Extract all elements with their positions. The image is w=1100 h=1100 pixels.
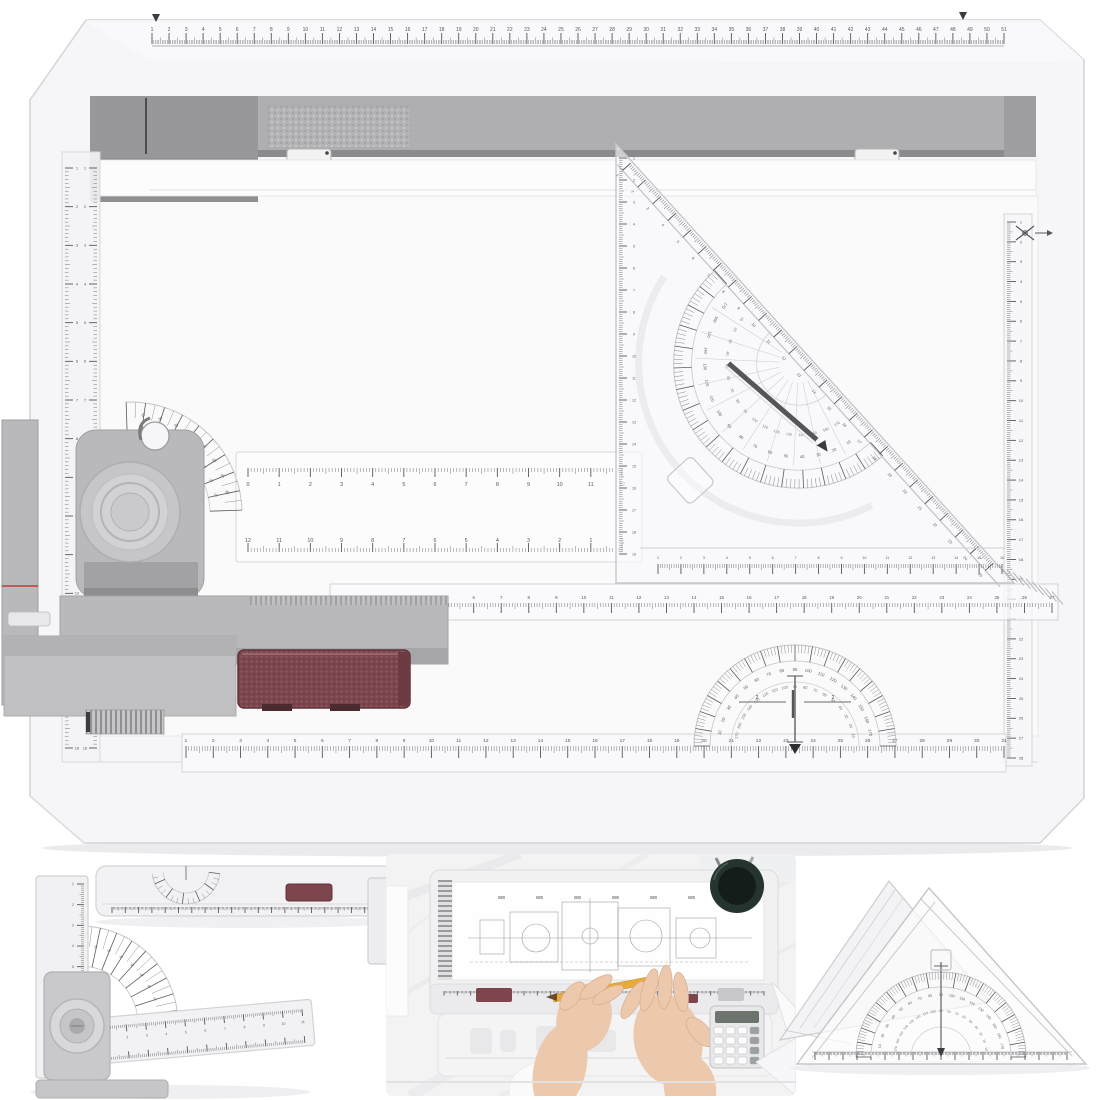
svg-text:19: 19	[829, 595, 834, 600]
svg-text:10: 10	[429, 738, 435, 744]
svg-text:3: 3	[185, 27, 188, 33]
svg-text:45: 45	[899, 27, 905, 33]
svg-text:46: 46	[916, 27, 922, 33]
svg-text:1: 1	[72, 882, 74, 886]
svg-text:16: 16	[405, 27, 411, 33]
svg-text:7: 7	[795, 556, 797, 560]
svg-text:24: 24	[810, 738, 816, 744]
head-knob-center	[111, 493, 149, 531]
svg-text:33: 33	[694, 27, 700, 33]
svg-text:41: 41	[831, 27, 837, 33]
svg-text:8: 8	[376, 738, 379, 744]
svg-text:16: 16	[1019, 517, 1024, 522]
svg-text:30: 30	[643, 27, 649, 33]
svg-text:90: 90	[793, 667, 798, 672]
clamp-grip-texture	[268, 106, 410, 148]
svg-text:8: 8	[633, 310, 635, 314]
svg-text:12: 12	[636, 595, 641, 600]
svg-text:19: 19	[632, 552, 636, 556]
svg-text:8: 8	[496, 482, 499, 488]
svg-text:28: 28	[609, 27, 615, 33]
svg-text:6: 6	[321, 738, 324, 744]
svg-text:27: 27	[592, 27, 598, 33]
svg-text:18: 18	[802, 595, 807, 600]
svg-text:17: 17	[620, 738, 626, 744]
svg-text:14: 14	[371, 27, 377, 33]
clamp-right-cap	[1004, 96, 1036, 157]
svg-text:23: 23	[783, 738, 789, 744]
svg-text:13: 13	[664, 595, 669, 600]
svg-text:12: 12	[908, 556, 912, 560]
svg-text:6: 6	[434, 482, 437, 488]
photo-board-left-rail	[438, 880, 452, 980]
svg-text:17: 17	[632, 508, 636, 512]
svg-text:10: 10	[851, 733, 856, 738]
svg-text:10: 10	[581, 595, 586, 600]
svg-text:44: 44	[882, 27, 888, 33]
svg-text:30: 30	[974, 738, 980, 744]
svg-text:25: 25	[558, 27, 564, 33]
svg-text:8: 8	[270, 27, 273, 33]
svg-text:6: 6	[236, 27, 239, 33]
svg-text:9: 9	[633, 332, 635, 336]
svg-text:31: 31	[1001, 738, 1007, 744]
svg-text:48: 48	[950, 27, 956, 33]
protractor-label-left: 2	[756, 695, 759, 701]
svg-text:9: 9	[403, 738, 406, 744]
svg-text:3: 3	[340, 482, 343, 488]
svg-text:18: 18	[439, 27, 445, 33]
bracket-pin	[8, 612, 50, 626]
protractor-label-right: 2	[832, 695, 835, 701]
svg-text:26: 26	[1019, 716, 1024, 721]
svg-text:17: 17	[422, 27, 428, 33]
svg-text:16: 16	[75, 745, 80, 750]
svg-text:24: 24	[541, 27, 547, 33]
svg-text:11: 11	[301, 1020, 305, 1024]
svg-text:22: 22	[507, 27, 513, 33]
svg-text:6: 6	[633, 266, 635, 270]
svg-text:10: 10	[557, 482, 563, 488]
svg-text:16: 16	[747, 595, 752, 600]
svg-text:1: 1	[151, 27, 154, 33]
svg-text:20: 20	[857, 595, 862, 600]
carriage-texture-strip	[86, 710, 164, 734]
svg-text:3: 3	[633, 200, 635, 204]
svg-text:26: 26	[1022, 595, 1027, 600]
svg-text:15: 15	[388, 27, 394, 33]
svg-text:13: 13	[931, 556, 935, 560]
svg-text:7: 7	[465, 482, 468, 488]
carriage-top-shade	[4, 636, 236, 656]
arm-piece-shadow	[95, 916, 395, 928]
svg-text:43: 43	[865, 27, 871, 33]
svg-text:20: 20	[473, 27, 479, 33]
head-hook-notch	[141, 422, 169, 450]
svg-text:42: 42	[848, 27, 854, 33]
svg-text:12: 12	[245, 538, 251, 544]
lifestyle-photo	[380, 854, 796, 1100]
paper-clip-left-pin	[325, 151, 329, 155]
svg-text:20: 20	[701, 738, 707, 744]
svg-text:22: 22	[1019, 636, 1024, 641]
svg-text:0: 0	[247, 482, 250, 488]
svg-text:14: 14	[1019, 477, 1024, 482]
svg-text:80: 80	[928, 994, 933, 999]
svg-text:39: 39	[797, 27, 803, 33]
svg-text:1: 1	[278, 482, 281, 488]
calculator	[710, 1006, 764, 1068]
svg-text:5: 5	[465, 538, 468, 544]
svg-text:24: 24	[967, 595, 972, 600]
svg-text:2: 2	[558, 538, 561, 544]
svg-text:50: 50	[984, 27, 990, 33]
svg-text:9: 9	[340, 538, 343, 544]
svg-text:2: 2	[168, 27, 171, 33]
maroon-grip-handle	[238, 650, 410, 708]
svg-text:26: 26	[575, 27, 581, 33]
calculator-screen	[715, 1011, 759, 1023]
svg-text:14: 14	[632, 442, 636, 446]
svg-text:47: 47	[933, 27, 939, 33]
svg-text:32: 32	[677, 27, 683, 33]
svg-text:4: 4	[633, 222, 635, 226]
arm-teeth-strip	[250, 596, 448, 605]
svg-text:5: 5	[72, 965, 74, 969]
svg-text:14: 14	[954, 556, 958, 560]
svg-text:10: 10	[862, 556, 866, 560]
svg-text:5: 5	[294, 738, 297, 744]
svg-text:11: 11	[320, 27, 325, 33]
svg-text:28: 28	[920, 738, 926, 744]
svg-text:2: 2	[212, 738, 215, 744]
svg-text:4: 4	[371, 482, 374, 488]
svg-text:130: 130	[786, 432, 793, 437]
svg-text:16: 16	[592, 738, 598, 744]
svg-text:7: 7	[253, 27, 256, 33]
svg-text:40: 40	[814, 27, 820, 33]
svg-text:12: 12	[632, 398, 636, 402]
svg-text:24: 24	[1019, 676, 1024, 681]
grip-foot-right	[330, 704, 360, 711]
svg-text:11: 11	[276, 538, 282, 544]
svg-text:3: 3	[239, 738, 242, 744]
svg-text:9: 9	[840, 556, 842, 560]
board-bottom-ruler: 1234567891011121314151617181920212223242…	[182, 734, 1007, 772]
svg-text:23: 23	[939, 595, 944, 600]
svg-text:16: 16	[83, 745, 88, 750]
svg-text:16: 16	[632, 486, 636, 490]
svg-text:31: 31	[660, 27, 666, 33]
pen-cup-opening	[718, 867, 756, 905]
svg-text:4: 4	[266, 738, 269, 744]
svg-text:80: 80	[803, 686, 808, 691]
svg-text:11: 11	[588, 482, 594, 488]
svg-text:10: 10	[303, 27, 309, 33]
svg-text:18: 18	[647, 738, 653, 744]
svg-text:4: 4	[726, 556, 728, 560]
svg-text:2: 2	[309, 482, 312, 488]
photo-gray-knob	[718, 988, 744, 1001]
drafting-board-scene: 1234567891011121314151617181920212223242…	[0, 0, 1100, 1100]
svg-text:14: 14	[538, 738, 544, 744]
svg-text:3: 3	[703, 556, 705, 560]
svg-text:130: 130	[703, 363, 708, 371]
paper-clamp-bar	[90, 96, 1036, 202]
svg-text:15: 15	[565, 738, 571, 744]
svg-text:12: 12	[337, 27, 343, 33]
svg-text:15: 15	[719, 595, 724, 600]
svg-text:36: 36	[746, 27, 752, 33]
svg-text:4: 4	[496, 538, 499, 544]
svg-text:21: 21	[884, 595, 889, 600]
arm-double-ruler: 0123456789101112 1211109876543210	[236, 452, 642, 562]
svg-text:1: 1	[589, 538, 592, 544]
svg-text:11: 11	[456, 738, 461, 744]
double-ruler-body	[236, 452, 642, 562]
svg-text:9: 9	[527, 482, 530, 488]
svg-text:38: 38	[780, 27, 786, 33]
svg-text:27: 27	[1019, 736, 1024, 741]
svg-text:1: 1	[657, 556, 659, 560]
svg-text:10: 10	[1019, 398, 1024, 403]
svg-text:13: 13	[511, 738, 517, 744]
svg-text:12: 12	[483, 738, 489, 744]
svg-text:1: 1	[185, 738, 188, 744]
svg-text:25: 25	[994, 595, 999, 600]
svg-text:51: 51	[1001, 27, 1007, 33]
svg-text:40: 40	[725, 351, 730, 356]
svg-text:10: 10	[307, 538, 313, 544]
svg-text:2: 2	[633, 178, 635, 182]
svg-text:2: 2	[72, 903, 74, 907]
svg-text:10: 10	[878, 1044, 883, 1049]
svg-text:13: 13	[354, 27, 360, 33]
svg-text:17: 17	[774, 595, 779, 600]
svg-text:7: 7	[402, 538, 405, 544]
svg-text:35: 35	[729, 27, 735, 33]
svg-text:5: 5	[402, 482, 405, 488]
protractor-head	[76, 418, 204, 598]
svg-text:18: 18	[632, 530, 636, 534]
svg-text:25: 25	[1019, 696, 1024, 701]
desk-left-device	[386, 886, 408, 1016]
svg-text:21: 21	[490, 27, 496, 33]
svg-text:7: 7	[633, 288, 635, 292]
svg-text:12: 12	[1019, 438, 1024, 443]
svg-text:29: 29	[626, 27, 632, 33]
svg-text:19: 19	[674, 738, 680, 744]
svg-text:5: 5	[219, 27, 222, 33]
svg-text:25: 25	[838, 738, 844, 744]
grip-foot-left	[262, 704, 292, 711]
product-photo-canvas: 1234567891011121314151617181920212223242…	[0, 0, 1100, 1100]
svg-text:8: 8	[371, 538, 374, 544]
svg-text:11: 11	[885, 556, 889, 560]
svg-text:11: 11	[632, 376, 636, 380]
svg-text:12: 12	[75, 591, 80, 596]
svg-text:10: 10	[632, 354, 636, 358]
head-lower-shade	[84, 562, 198, 588]
svg-text:14: 14	[692, 595, 697, 600]
svg-text:49: 49	[967, 27, 973, 33]
svg-text:29: 29	[947, 738, 953, 744]
paper-holder-strip	[100, 160, 1036, 196]
photo-maroon-slider	[476, 988, 512, 1002]
svg-text:3: 3	[527, 538, 530, 544]
svg-text:8: 8	[818, 556, 820, 560]
arm-piece-maroon-button	[286, 884, 332, 901]
svg-text:13: 13	[1019, 458, 1024, 463]
svg-text:15: 15	[1019, 497, 1024, 502]
svg-text:4: 4	[202, 27, 205, 33]
svg-text:13: 13	[632, 420, 636, 424]
svg-text:26: 26	[865, 738, 871, 744]
svg-text:1: 1	[633, 156, 635, 160]
svg-text:3: 3	[72, 924, 74, 928]
svg-text:37: 37	[763, 27, 769, 33]
svg-text:23: 23	[524, 27, 530, 33]
svg-text:40: 40	[130, 963, 134, 967]
svg-text:23: 23	[1019, 656, 1024, 661]
svg-text:18: 18	[1019, 557, 1024, 562]
svg-text:4: 4	[72, 944, 74, 948]
grip-right-edge	[398, 652, 410, 706]
angle-unit-base-foot	[36, 1080, 168, 1098]
svg-text:34: 34	[712, 27, 718, 33]
svg-text:9: 9	[287, 27, 290, 33]
svg-text:16: 16	[1000, 556, 1004, 560]
svg-text:5: 5	[633, 244, 635, 248]
carriage-strip-index	[86, 712, 90, 732]
svg-text:15: 15	[977, 556, 981, 560]
svg-text:11: 11	[609, 595, 614, 600]
svg-text:28: 28	[1019, 755, 1024, 760]
svg-text:17: 17	[1019, 537, 1024, 542]
svg-text:7: 7	[348, 738, 351, 744]
paper-clip-right-pin	[893, 151, 897, 155]
svg-text:10: 10	[281, 1022, 285, 1026]
arm-piece-bottom-scale	[112, 907, 378, 913]
svg-text:2: 2	[680, 556, 682, 560]
svg-text:5: 5	[749, 556, 751, 560]
svg-text:6: 6	[772, 556, 774, 560]
svg-text:15: 15	[632, 464, 636, 468]
svg-text:22: 22	[912, 595, 917, 600]
svg-text:19: 19	[456, 27, 462, 33]
svg-text:22: 22	[756, 738, 762, 744]
svg-text:6: 6	[434, 538, 437, 544]
